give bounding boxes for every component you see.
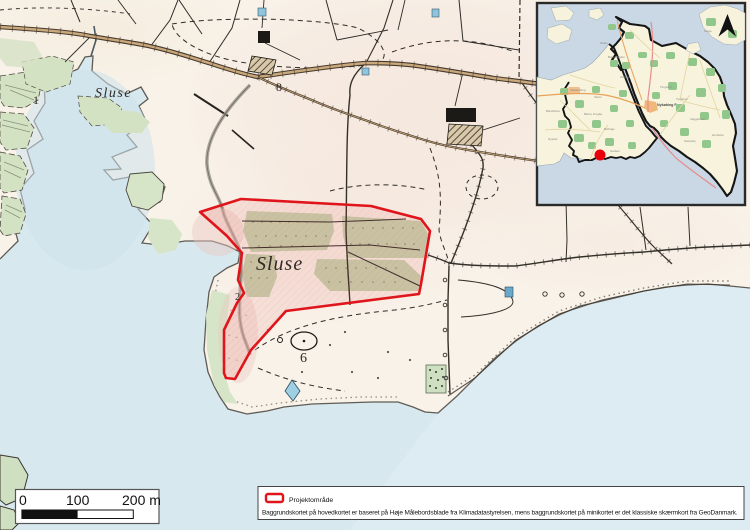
svg-text:Tingsted: Tingsted: [660, 85, 672, 89]
svg-text:1: 1: [33, 93, 39, 107]
svg-text:6: 6: [300, 351, 307, 366]
svg-text:Stube: Stube: [600, 41, 608, 45]
svg-text:2: 2: [235, 292, 240, 303]
svg-text:Olstrup: Olstrup: [620, 75, 630, 79]
svg-text:Boltinge: Boltinge: [604, 127, 615, 131]
svg-text:Horbelev: Horbelev: [712, 133, 725, 137]
svg-text:Nykøbing F: Nykøbing F: [657, 103, 677, 107]
svg-text:Sluse: Sluse: [256, 253, 303, 275]
svg-text:Nysted: Nysted: [548, 137, 558, 141]
svg-text:Tyrstlrup: Tyrstlrup: [676, 97, 688, 101]
svg-text:100: 100: [66, 492, 90, 508]
svg-text:Baggrundskortet på hovedkortet: Baggrundskortet på hovedkortet er basere…: [262, 509, 738, 517]
svg-text:Vanto: Vanto: [594, 95, 602, 99]
svg-text:Barno Froglte: Barno Froglte: [584, 112, 603, 116]
svg-text:Projektområde: Projektområde: [289, 496, 333, 504]
svg-text:Vaggerlese: Vaggerlese: [690, 117, 705, 121]
svg-text:Bandholra: Bandholra: [546, 109, 560, 113]
svg-text:Sakskobing: Sakskobing: [570, 88, 586, 92]
svg-text:Sluse: Sluse: [95, 86, 132, 101]
svg-text:8: 8: [276, 80, 282, 94]
svg-text:Barno Alsloo: Barno Alsloo: [608, 55, 625, 59]
svg-text:Gedser: Gedser: [610, 149, 620, 153]
svg-text:0: 0: [19, 492, 27, 508]
svg-text:Stege: Stege: [704, 29, 712, 33]
svg-text:Stavreby: Stavreby: [684, 139, 696, 143]
svg-text:200 m: 200 m: [122, 492, 161, 508]
